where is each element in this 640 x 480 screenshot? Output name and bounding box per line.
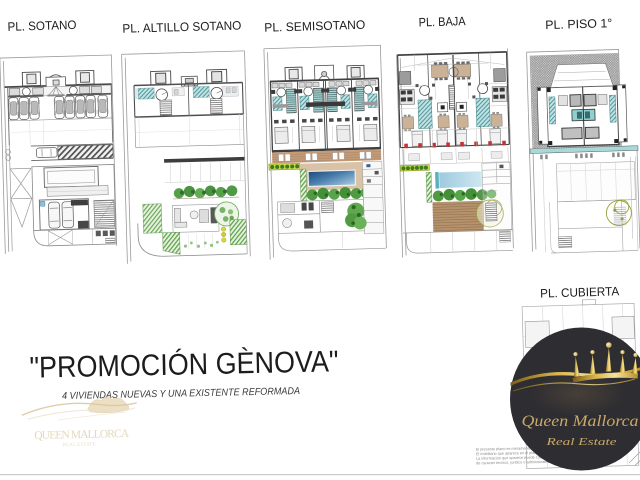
svg-text:PL. SOTANO: PL. SOTANO <box>7 18 76 34</box>
svg-text:PL. SEMISOTANO: PL. SEMISOTANO <box>264 18 365 35</box>
svg-text:PL. CUBIERTA: PL. CUBIERTA <box>540 284 620 300</box>
svg-text:PL. PISO 1°: PL. PISO 1° <box>545 16 612 32</box>
svg-text:"PROMOCIÓN GÈNOVA": "PROMOCIÓN GÈNOVA" <box>29 345 339 384</box>
svg-text:REAL ESTATE: REAL ESTATE <box>62 442 96 448</box>
svg-text:PL. BAJA: PL. BAJA <box>418 14 466 29</box>
svg-text:Real Estate: Real Estate <box>545 437 617 448</box>
svg-text:QUEEN MALLORCA: QUEEN MALLORCA <box>34 428 130 442</box>
svg-text:Queen Mallorca: Queen Mallorca <box>522 413 639 430</box>
